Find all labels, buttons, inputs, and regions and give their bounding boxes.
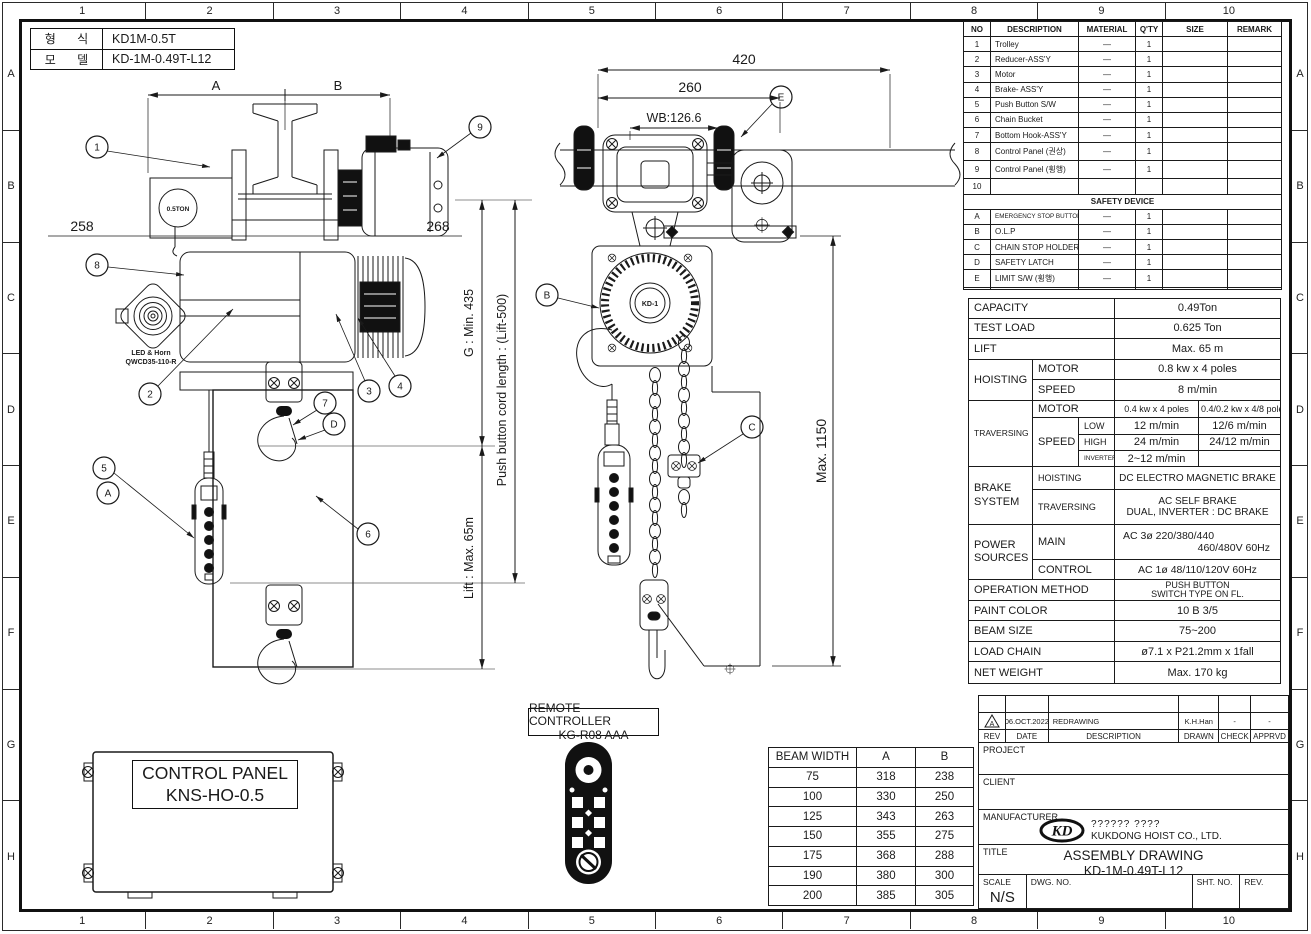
table-row: 9Control Panel (횡행)—1 <box>964 161 1282 179</box>
grid-col: 2 <box>145 912 272 929</box>
table-row: 175368288 <box>769 846 974 866</box>
scale-cell: SCALE N/S <box>979 875 1027 908</box>
table-row: CAPACITY0.49Ton <box>969 299 1281 319</box>
grid-band-top: 1 2 3 4 5 6 7 8 9 10 <box>19 3 1292 19</box>
table-row: BEAM SIZE75~200 <box>969 621 1281 642</box>
table-row: 형 식 KD1M-0.5T <box>31 29 234 49</box>
remote-title: REMOTE CONTROLLER <box>529 702 658 728</box>
revision-row: A 06.OCT.2022 REDRAWING K.H.Han - - <box>979 713 1288 730</box>
grid-band-right: A B C D E F G H <box>1292 19 1308 912</box>
grid-col: 5 <box>528 3 655 19</box>
grid-col: 7 <box>782 912 909 929</box>
project-label: PROJECT <box>983 745 1025 755</box>
grid-col: 10 <box>1165 912 1292 929</box>
revision-apprvd: - <box>1251 713 1288 729</box>
grid-row: F <box>1292 577 1308 689</box>
grid-row: D <box>1292 353 1308 465</box>
drawing-title: ASSEMBLY DRAWING <box>979 848 1288 864</box>
project-section: PROJECT <box>979 743 1288 775</box>
grid-col: 4 <box>400 912 527 929</box>
manufacturer-name-native: ?????? ???? <box>1091 819 1222 831</box>
table-row: 125343263 <box>769 807 974 827</box>
svg-text:A: A <box>990 721 995 728</box>
client-label: CLIENT <box>983 777 1015 787</box>
table-row: 모 델 KD-1M-0.49T-L12 <box>31 49 234 70</box>
table-row: POWER SOURCESMAINAC 3ø 220/380/440460/48… <box>969 524 1281 559</box>
manufacturer-section: MANUFACTURER KD ?????? ???? KUKDONG HOIS… <box>979 810 1288 845</box>
kd-logo: KD <box>1039 818 1085 843</box>
scale-row: SCALE N/S DWG. NO. SHT. NO. REV. <box>979 875 1288 908</box>
table-row: 7Bottom Hook-ASS'Y—1 <box>964 127 1282 142</box>
grid-col: 3 <box>273 912 400 929</box>
table-row: 3Motor—1 <box>964 67 1282 82</box>
control-panel-label: CONTROL PANEL KNS-HO-0.5 <box>132 760 298 809</box>
table-row: OPERATION METHODPUSH BUTTONSWITCH TYPE O… <box>969 580 1281 601</box>
grid-col: 10 <box>1165 3 1292 19</box>
revision-description: REDRAWING <box>1049 713 1180 729</box>
parts-table: NO DESCRIPTION MATERIAL Q'TY SIZE REMARK… <box>963 21 1282 290</box>
table-row: BRAKE SYSTEMHOISTINGDC ELECTRO MAGNETIC … <box>969 467 1281 490</box>
table-row: 6Chain Bucket—1 <box>964 112 1282 127</box>
grid-col: 9 <box>1037 3 1164 19</box>
table-row: NO DESCRIPTION MATERIAL Q'TY SIZE REMARK <box>964 22 1282 37</box>
table-row: 100330250 <box>769 787 974 807</box>
safety-device-header: SAFETY DEVICE <box>964 194 1282 209</box>
table-row: 2Reducer-ASS'Y—1 <box>964 52 1282 67</box>
svg-text:KD: KD <box>1051 824 1073 840</box>
table-row: PAINT COLOR10 B 3/5 <box>969 600 1281 621</box>
revision-header-row: REV DATE DESCRIPTION DRAWN CHECK APPRVD <box>979 730 1288 743</box>
model-box: 형 식 KD1M-0.5T 모 델 KD-1M-0.49T-L12 <box>30 28 235 70</box>
revision-date: 06.OCT.2022 <box>1006 713 1049 729</box>
title-section: TITLE ASSEMBLY DRAWING KD-1M-0.49T-L12 <box>979 845 1288 875</box>
grid-row: G <box>1292 689 1308 801</box>
table-row: TEST LOAD0.625 Ton <box>969 318 1281 339</box>
table-row: 10 <box>964 179 1282 194</box>
remote-model: KG-R08 AAA <box>558 729 628 742</box>
table-row: BEAM WIDTHAB <box>769 748 974 768</box>
grid-row: D <box>3 353 19 465</box>
manufacturer-name: KUKDONG HOIST CO., LTD. <box>1091 831 1222 843</box>
table-row: DSAFETY LATCH—1 <box>964 255 1282 270</box>
table-row <box>964 288 1282 290</box>
grid-col: 9 <box>1037 912 1164 929</box>
grid-row: E <box>1292 465 1308 577</box>
grid-row: A <box>3 19 19 130</box>
grid-col: 3 <box>273 3 400 19</box>
spec-table: CAPACITY0.49Ton TEST LOAD0.625 Ton LIFTM… <box>968 298 1281 684</box>
table-row: 4Brake- ASS'Y—1 <box>964 82 1282 97</box>
table-row: CCHAIN STOP HOLDER—1 <box>964 240 1282 255</box>
grid-col: 6 <box>655 3 782 19</box>
table-row: 75318238 <box>769 767 974 787</box>
grid-band-left: A B C D E F G H <box>3 19 19 912</box>
title-block: A 06.OCT.2022 REDRAWING K.H.Han - - REV … <box>978 695 1289 909</box>
sht-no-cell: SHT. NO. <box>1193 875 1241 908</box>
table-row: HOISTINGMOTOR0.8 kw x 4 poles <box>969 359 1281 380</box>
table-row: 200385305 <box>769 886 974 906</box>
drawing-sheet: A B 258 268 <box>0 0 1311 934</box>
grid-row: F <box>3 577 19 689</box>
grid-col: 5 <box>528 912 655 929</box>
table-row: SAFETY DEVICE <box>964 194 1282 209</box>
table-row: 1Trolley—1 <box>964 37 1282 52</box>
remote-controller-label: REMOTE CONTROLLER KG-R08 AAA <box>528 708 659 736</box>
table-row: LIFTMax. 65 m <box>969 339 1281 360</box>
grid-col: 8 <box>910 912 1037 929</box>
grid-row: B <box>3 130 19 242</box>
model-label: 모 델 <box>31 50 103 70</box>
table-row: 190380300 <box>769 866 974 886</box>
dwg-no-cell: DWG. NO. <box>1027 875 1193 908</box>
grid-row: H <box>3 800 19 912</box>
table-row: BO.L.P—1 <box>964 224 1282 239</box>
grid-row: E <box>3 465 19 577</box>
grid-col: 8 <box>910 3 1037 19</box>
table-row: ELIMIT S/W (횡행)—1 <box>964 270 1282 288</box>
control-panel-model: KNS-HO-0.5 <box>166 785 264 807</box>
revision-drawn: K.H.Han <box>1179 713 1219 729</box>
type-value: KD1M-0.5T <box>103 29 234 49</box>
grid-row: A <box>1292 19 1308 130</box>
type-label: 형 식 <box>31 29 103 49</box>
table-row: 8Control Panel (권상)—1 <box>964 143 1282 161</box>
table-row: 150355275 <box>769 827 974 847</box>
table-row: 5Push Button S/W—1 <box>964 97 1282 112</box>
revision-empty-row <box>979 696 1288 713</box>
grid-col: 1 <box>19 3 145 19</box>
grid-col: 7 <box>782 3 909 19</box>
grid-col: 1 <box>19 912 145 929</box>
grid-col: 4 <box>400 3 527 19</box>
grid-row: C <box>3 242 19 354</box>
grid-row: C <box>1292 242 1308 354</box>
grid-col: 6 <box>655 912 782 929</box>
rev-cell: REV. <box>1240 875 1288 908</box>
grid-row: B <box>1292 130 1308 242</box>
beam-width-table: BEAM WIDTHAB 75318238 100330250 12534326… <box>768 747 974 906</box>
control-panel-title: CONTROL PANEL <box>142 763 288 785</box>
grid-row: H <box>1292 800 1308 912</box>
grid-row: G <box>3 689 19 801</box>
client-section: CLIENT <box>979 775 1288 810</box>
grid-band-bottom: 1 2 3 4 5 6 7 8 9 10 <box>19 912 1292 929</box>
revision-triangle-icon: A <box>984 714 1000 728</box>
table-row: TRAVERSINGMOTOR0.4 kw x 4 poles0.4/0.2 k… <box>969 400 1281 417</box>
model-value: KD-1M-0.49T-L12 <box>103 50 234 70</box>
grid-col: 2 <box>145 3 272 19</box>
scale-value: N/S <box>979 887 1026 908</box>
table-row: LOAD CHAINø7.1 x P21.2mm x 1fall <box>969 641 1281 662</box>
table-row: NET WEIGHTMax. 170 kg <box>969 662 1281 684</box>
table-row: AEMERGENCY STOP BUTTON S/W—1 <box>964 209 1282 224</box>
revision-check: - <box>1219 713 1251 729</box>
